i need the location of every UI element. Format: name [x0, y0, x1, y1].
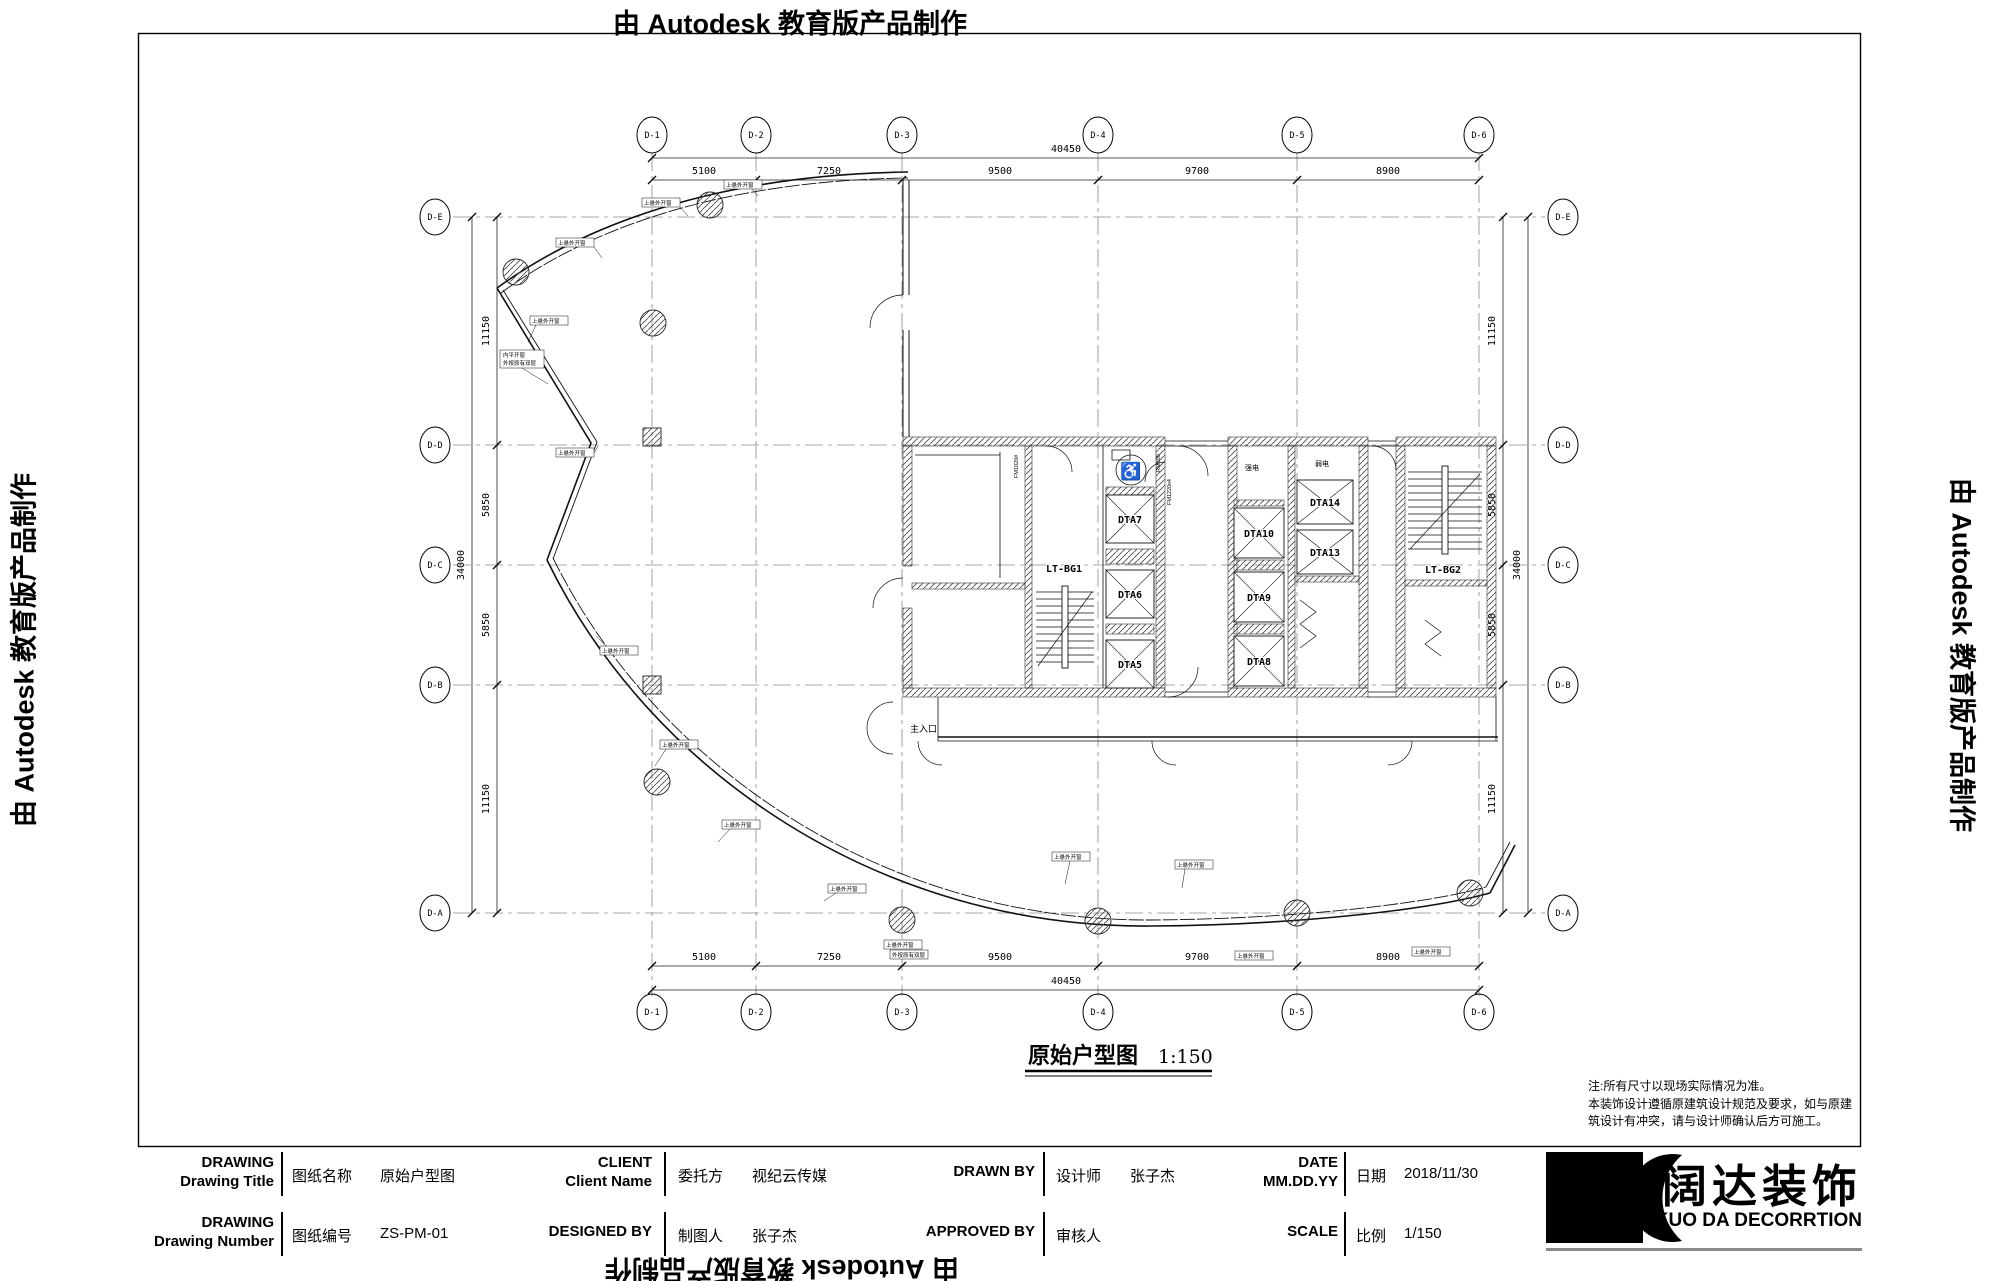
- drawing-title-en: DRAWING Drawing Title: [124, 1153, 274, 1191]
- approved-by-cn: 审核人: [1056, 1225, 1101, 1246]
- window-label: 上悬外开窗: [602, 647, 630, 655]
- window-label-2b: 外按原有双层: [892, 951, 926, 959]
- grid-bubble-left-db: D-B: [427, 681, 442, 691]
- plan-title: 原始户型图: [1028, 1043, 1138, 1069]
- grid-bubble-top-d4: D-4: [1090, 131, 1105, 141]
- dim-top-1: 5100: [692, 166, 716, 177]
- scale-value: 1/150: [1404, 1225, 1442, 1242]
- grid-bubble-top-d6: D-6: [1471, 131, 1486, 141]
- stair-lt-bg2: [1408, 466, 1482, 554]
- grid-bubble-bot-d3: D-3: [894, 1008, 909, 1018]
- window-label: 上悬外开窗: [724, 821, 752, 829]
- lift-dta10-label: DTA10: [1244, 529, 1274, 540]
- grid-bubble-bot-d6: D-6: [1471, 1008, 1486, 1018]
- designed-by-en: DESIGNED BY: [512, 1222, 652, 1241]
- window-label: 上悬外开窗: [1177, 861, 1205, 869]
- window-label: 上悬外开窗: [886, 941, 914, 949]
- dim-total-right: 34000: [1512, 550, 1523, 580]
- drawing-title-value: 原始户型图: [380, 1165, 455, 1186]
- plan-scale: 1:150: [1158, 1046, 1213, 1068]
- window-label-2a: 内平开窗: [503, 351, 526, 359]
- dim-left-4: 11150: [481, 784, 492, 814]
- autodesk-watermark-left: 由 Autodesk 教育版产品制作: [3, 473, 42, 827]
- grid-bubble-top-d5: D-5: [1289, 131, 1304, 141]
- dim-total-top: 40450: [1051, 144, 1081, 155]
- stair-lt-bg1: [1036, 586, 1094, 668]
- lift-dta14-label: DTA14: [1310, 498, 1340, 509]
- window-label: 上悬外开窗: [558, 449, 586, 457]
- grid-bubble-right-dd: D-D: [1555, 441, 1570, 451]
- grid-bubble-bot-d1: D-1: [644, 1008, 659, 1018]
- titleblock-divider: [664, 1152, 666, 1196]
- drawing-number-en-line2: Drawing Number: [124, 1232, 274, 1251]
- approved-by-en: APPROVED BY: [895, 1222, 1035, 1241]
- grid-bubbles-bottom: [637, 994, 1494, 1030]
- logo-name-cn: 阔达装饰: [1652, 1150, 1862, 1215]
- grid-bubble-left-da: D-A: [427, 909, 442, 919]
- grid-bubble-top-d2: D-2: [748, 131, 763, 141]
- floor-plan-drawing: 40450 5100 7250 9500 9700 8900 5100 7250…: [0, 0, 2000, 1281]
- date-cn: 日期: [1356, 1165, 1386, 1186]
- date-value: 2018/11/30: [1404, 1165, 1478, 1182]
- sheet-border: [139, 34, 1861, 1147]
- client-en: CLIENT Client Name: [512, 1153, 652, 1191]
- client-cn: 委托方: [678, 1165, 723, 1186]
- dim-top-3: 9500: [988, 166, 1012, 177]
- drawing-sheet: 40450 5100 7250 9500 9700 8900 5100 7250…: [0, 0, 2000, 1281]
- drawing-title-en-line1: DRAWING: [124, 1153, 274, 1172]
- logo-name-en: KUO DA DECORRTION: [1652, 1210, 1862, 1232]
- window-label: 上悬外开窗: [830, 885, 858, 893]
- strong-electric-room-label: 强电: [1245, 463, 1259, 472]
- titleblock-divider: [1043, 1212, 1045, 1256]
- client-en-line1: CLIENT: [512, 1153, 652, 1172]
- dim-top-4: 9700: [1185, 166, 1209, 177]
- titleblock-divider: [1344, 1152, 1346, 1196]
- dim-total-bottom: 40450: [1051, 976, 1081, 987]
- window-label-2b: 外按原有双层: [503, 359, 537, 367]
- grid-bubble-right-de: D-E: [1555, 213, 1570, 223]
- grid-bubble-top-d1: D-1: [644, 131, 659, 141]
- grid-bubble-bot-d4: D-4: [1090, 1008, 1105, 1018]
- scale-cn: 比例: [1356, 1225, 1386, 1246]
- designed-by-cn: 制图人: [678, 1225, 723, 1246]
- grid-bubble-right-da: D-A: [1555, 909, 1570, 919]
- window-label: 上悬外开窗: [532, 317, 560, 325]
- entrance-label: 主入口: [910, 723, 937, 734]
- drawn-by-cn: 设计师: [1056, 1165, 1101, 1186]
- wheelchair-icon: ♿: [1120, 461, 1141, 481]
- client-en-line2: Client Name: [512, 1172, 652, 1191]
- dim-right-1: 11150: [1487, 316, 1498, 346]
- door-tag-3: RM800: [1156, 454, 1162, 472]
- client-value: 视纪云传媒: [752, 1165, 827, 1186]
- lift-dta9-label: DTA9: [1247, 593, 1271, 604]
- door-tag-2: FM1220s4: [1167, 479, 1173, 505]
- grid-bubble-bot-d2: D-2: [748, 1008, 763, 1018]
- autodesk-watermark-top: 由 Autodesk 教育版产品制作: [613, 2, 967, 41]
- dim-left-3: 5850: [481, 613, 492, 637]
- plan-title-group: 原始户型图 1:150: [1025, 1043, 1213, 1076]
- dim-bot-2: 7250: [817, 952, 841, 963]
- lift-dta5-label: DTA5: [1118, 660, 1142, 671]
- date-en-line1: DATE: [1198, 1153, 1338, 1172]
- grid-bubble-bot-d5: D-5: [1289, 1008, 1304, 1018]
- weak-electric-room-label: 弱电: [1315, 459, 1329, 468]
- drawn-by-value: 张子杰: [1130, 1165, 1175, 1186]
- autodesk-watermark-right: 由 Autodesk 教育版产品制作: [1945, 478, 1984, 832]
- dim-top-5: 8900: [1376, 166, 1400, 177]
- grid-bubble-top-d3: D-3: [894, 131, 909, 141]
- stair2-label: LT-BG2: [1425, 565, 1461, 576]
- dim-bot-4: 9700: [1185, 952, 1209, 963]
- window-label: 上悬外开窗: [662, 741, 690, 749]
- grid-bubble-left-dd: D-D: [427, 441, 442, 451]
- window-label: 上悬外开窗: [558, 239, 586, 247]
- lift-dta8-label: DTA8: [1247, 657, 1271, 668]
- drawing-number-en: DRAWING Drawing Number: [124, 1213, 274, 1251]
- note-line-1: 注:所有尺寸以现场实际情况为准。: [1588, 1078, 1771, 1093]
- scale-en: SCALE: [1198, 1222, 1338, 1241]
- date-en-line2: MM.DD.YY: [1198, 1172, 1338, 1191]
- titleblock-divider: [1043, 1152, 1045, 1196]
- note-line-2: 本装饰设计遵循原建筑设计规范及要求，如与原建: [1588, 1096, 1852, 1111]
- grid-bubble-right-db: D-B: [1555, 681, 1570, 691]
- note-line-3: 筑设计有冲突，请与设计师确认后方可施工。: [1588, 1113, 1828, 1128]
- titleblock-divider: [664, 1212, 666, 1256]
- company-logo: 阔达装饰 KUO DA DECORRTION: [1546, 1152, 1862, 1252]
- dim-left-2: 5850: [481, 493, 492, 517]
- window-label: 上悬外开窗: [1054, 853, 1082, 861]
- drawing-number-en-line1: DRAWING: [124, 1213, 274, 1232]
- window-label: 上悬外开窗: [726, 181, 754, 189]
- grid-lines-horizontal: [453, 217, 1545, 913]
- drawing-number-value: ZS-PM-01: [380, 1225, 448, 1242]
- dim-bot-5: 8900: [1376, 952, 1400, 963]
- designed-by-value: 张子杰: [752, 1225, 797, 1246]
- titleblock-divider: [281, 1212, 283, 1256]
- drawing-title-en-line2: Drawing Title: [124, 1172, 274, 1191]
- window-label: 上悬外开窗: [1237, 952, 1265, 960]
- logo-black-box: [1546, 1152, 1643, 1243]
- date-en: DATE MM.DD.YY: [1198, 1153, 1338, 1191]
- autodesk-watermark-bottom: 由 Autodesk 教育版产品制作: [605, 1252, 959, 1281]
- logo-underline: [1546, 1248, 1862, 1251]
- wall-d3-upper: [870, 180, 909, 437]
- door-tag-1: FM1020#: [1014, 454, 1020, 478]
- dim-right-4: 11150: [1487, 784, 1498, 814]
- grid-bubble-left-dc: D-C: [427, 561, 442, 571]
- drawing-title-cn: 图纸名称: [292, 1165, 352, 1186]
- titleblock-divider: [281, 1152, 283, 1196]
- window-label: 上悬外开窗: [644, 199, 672, 207]
- storefront: [918, 697, 1498, 765]
- drawn-by-en: DRAWN BY: [895, 1162, 1035, 1181]
- closet-zigzag-right-core: [1300, 600, 1441, 656]
- lift-dta7-label: DTA7: [1118, 515, 1142, 526]
- titleblock-divider: [1344, 1212, 1346, 1256]
- window-label: 上悬外开窗: [1414, 948, 1442, 956]
- lift-dta6-label: DTA6: [1118, 590, 1142, 601]
- grid-bubble-right-dc: D-C: [1555, 561, 1570, 571]
- grid-bubble-left-de: D-E: [427, 213, 442, 223]
- dim-bot-3: 9500: [988, 952, 1012, 963]
- drawing-number-cn: 图纸编号: [292, 1225, 352, 1246]
- dim-bot-1: 5100: [692, 952, 716, 963]
- dim-total-left: 34000: [456, 550, 467, 580]
- dim-left-1: 11150: [481, 316, 492, 346]
- lift-dta13-label: DTA13: [1310, 548, 1340, 559]
- stair1-label: LT-BG1: [1046, 564, 1082, 575]
